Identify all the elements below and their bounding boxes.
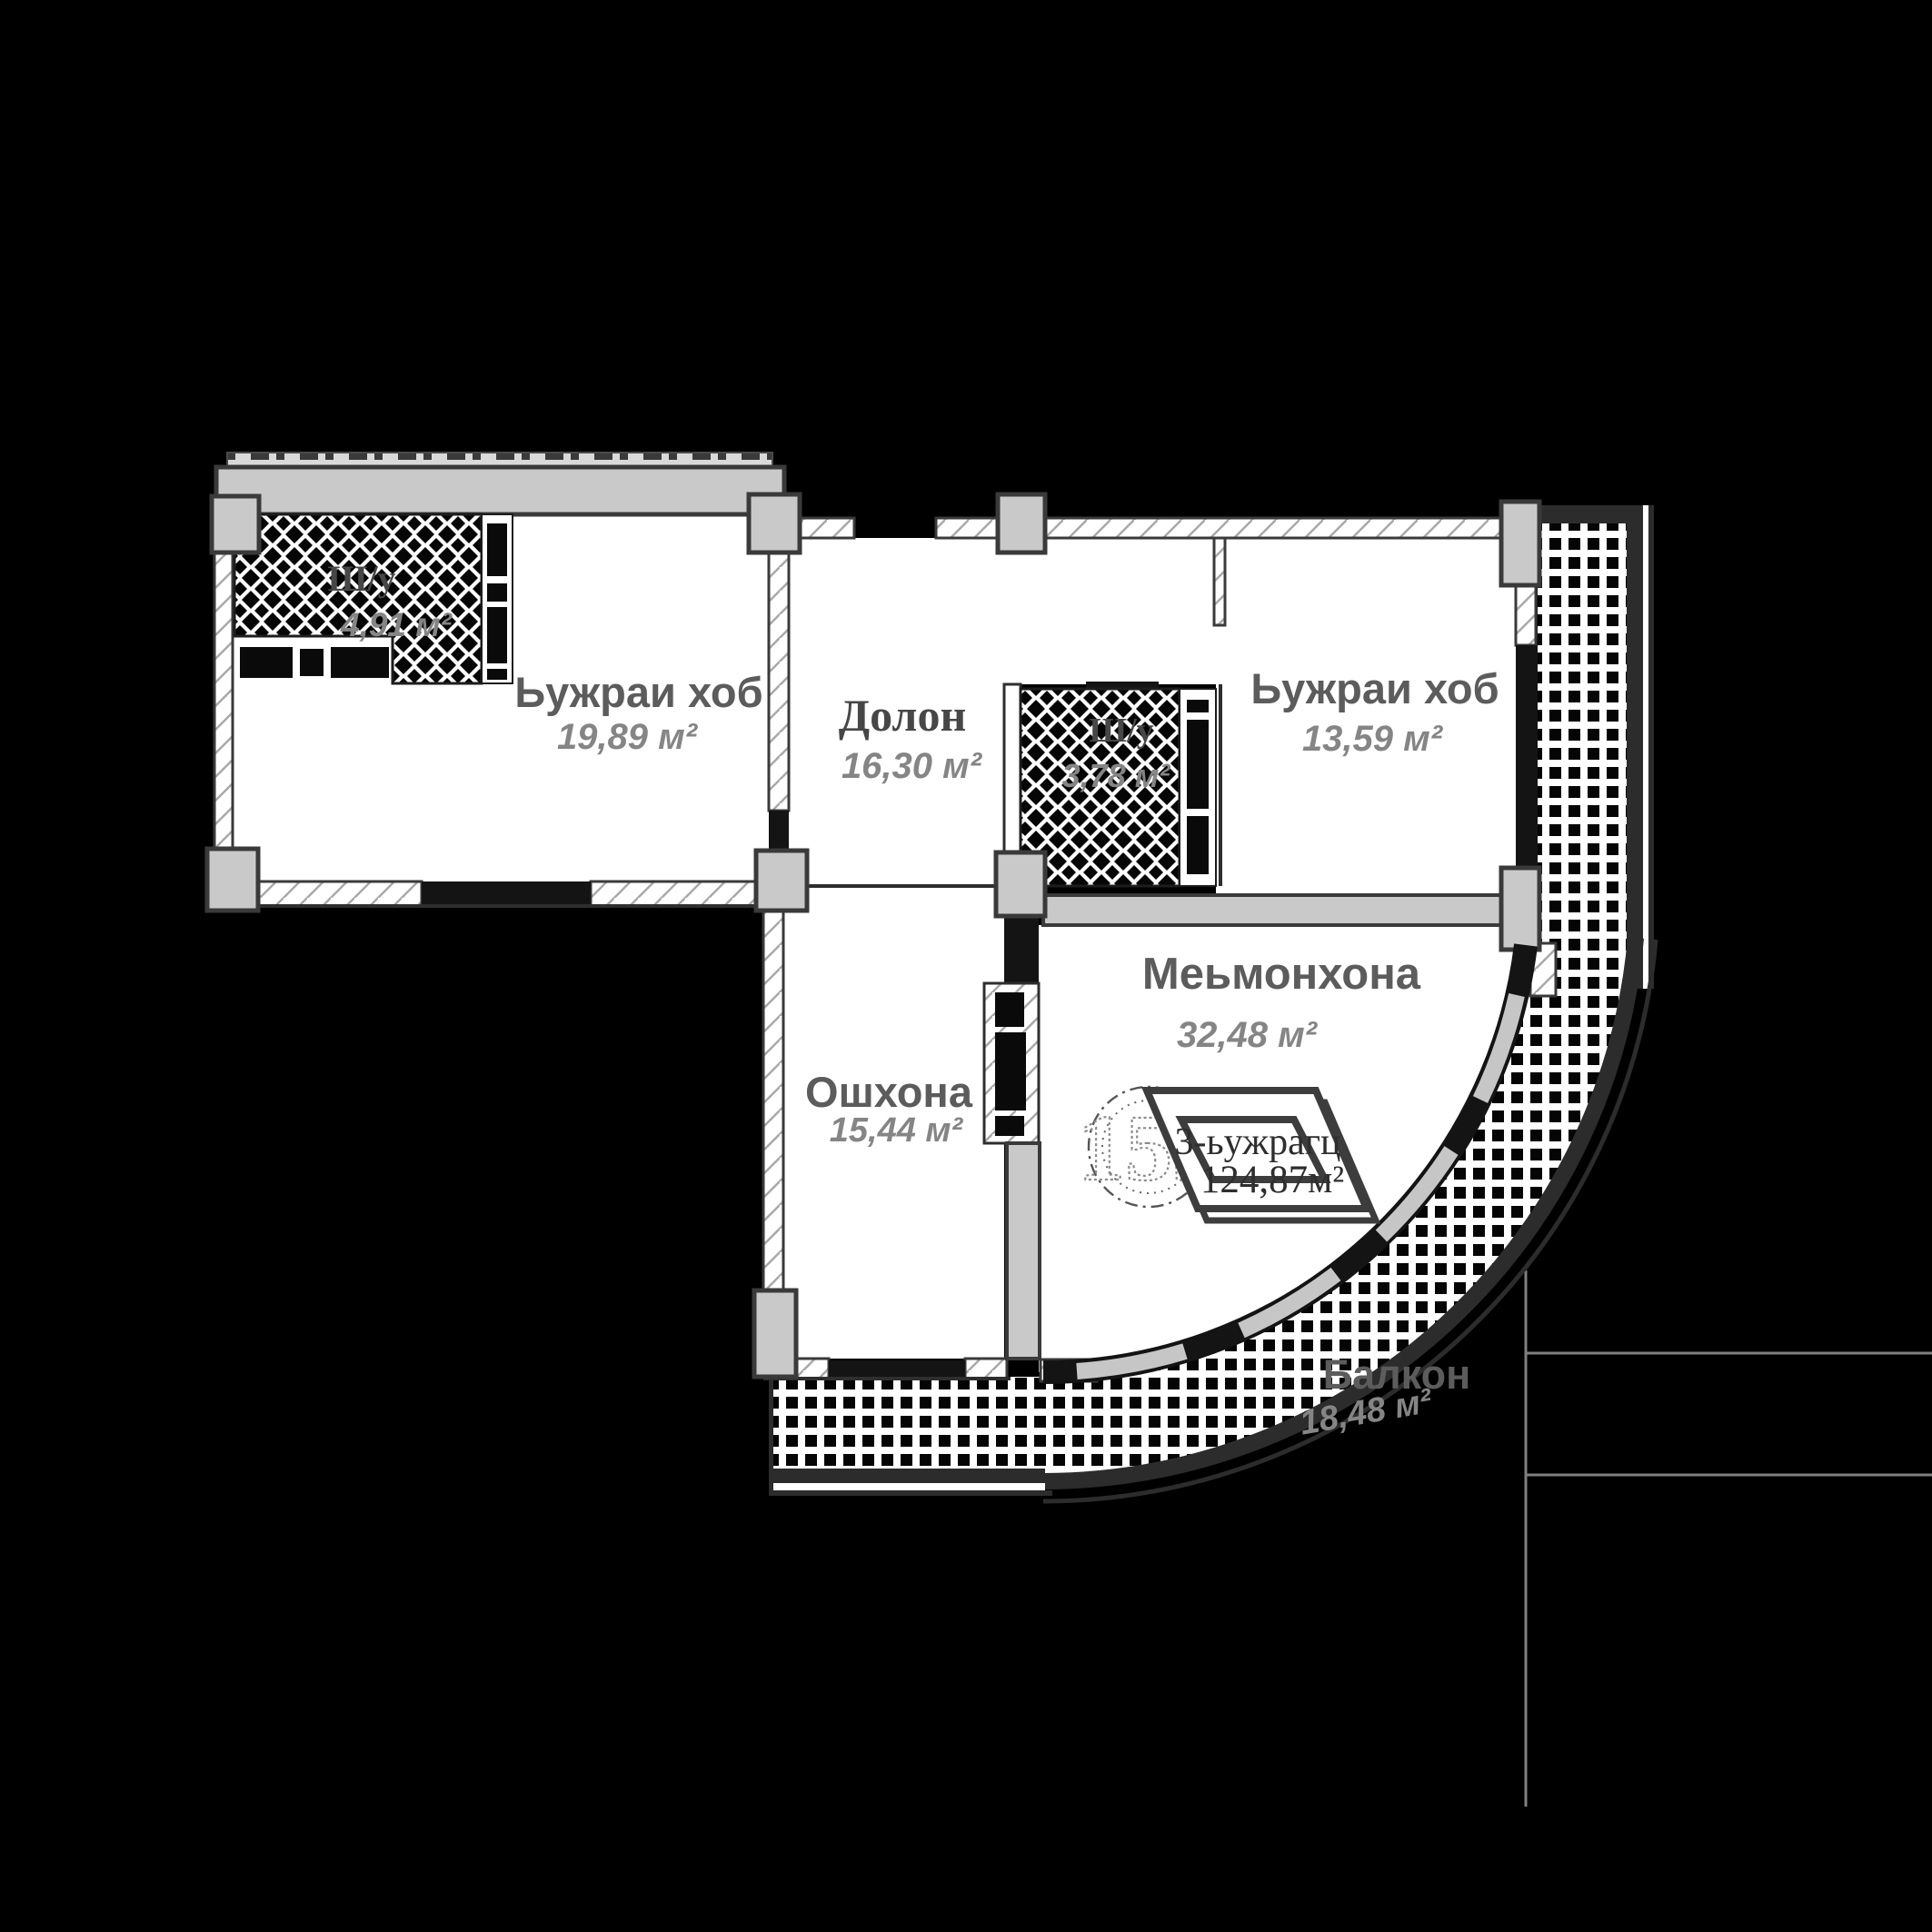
svg-text:16,30 м²: 16,30 м²	[842, 746, 983, 786]
apartment-type-label: 3-ьужрагц	[1175, 1121, 1341, 1163]
svg-text:Ш/у: Ш/у	[1089, 712, 1153, 750]
label-hallway: Долон 16,30 м²	[839, 690, 983, 786]
floor-hallway-upper	[789, 538, 1214, 684]
svg-text:4,91 м²: 4,91 м²	[340, 606, 453, 643]
svg-text:13,59 м²: 13,59 м²	[1302, 719, 1444, 759]
svg-text:Ьужраи хоб: Ьужраи хоб	[1250, 664, 1499, 712]
svg-text:15,44 м²: 15,44 м²	[830, 1111, 964, 1150]
svg-text:Ошхона: Ошхона	[805, 1068, 973, 1116]
vent-shaft	[984, 983, 1039, 1143]
floor-plan-svg: 155 3-ьужрагц 124,87м² Ш/у 4,91 м² Ьужра…	[0, 0, 1932, 1932]
floor-plan-canvas: 155 3-ьужрагц 124,87м² Ш/у 4,91 м² Ьужра…	[0, 0, 1932, 1932]
svg-text:Меьмонхона: Меьмонхона	[1142, 950, 1421, 999]
floor-bedroom-2	[1216, 538, 1516, 895]
label-kitchen: Ошхона 15,44 м²	[805, 1068, 973, 1150]
living-room-north-wall	[1043, 895, 1504, 925]
svg-text:32,48 м²: 32,48 м²	[1177, 1015, 1319, 1055]
kitchen-east-wall	[1007, 1143, 1040, 1359]
north-exterior-wall	[216, 453, 784, 514]
svg-text:19,89 м²: 19,89 м²	[557, 717, 699, 757]
closet-1	[234, 514, 513, 683]
svg-text:Ьужраи хоб: Ьужраи хоб	[514, 668, 762, 716]
apartment-total-area: 124,87м²	[1200, 1159, 1344, 1201]
svg-text:3,78 м²: 3,78 м²	[1062, 757, 1171, 794]
svg-text:Долон: Долон	[839, 690, 967, 741]
svg-text:Ш/у: Ш/у	[327, 558, 395, 599]
